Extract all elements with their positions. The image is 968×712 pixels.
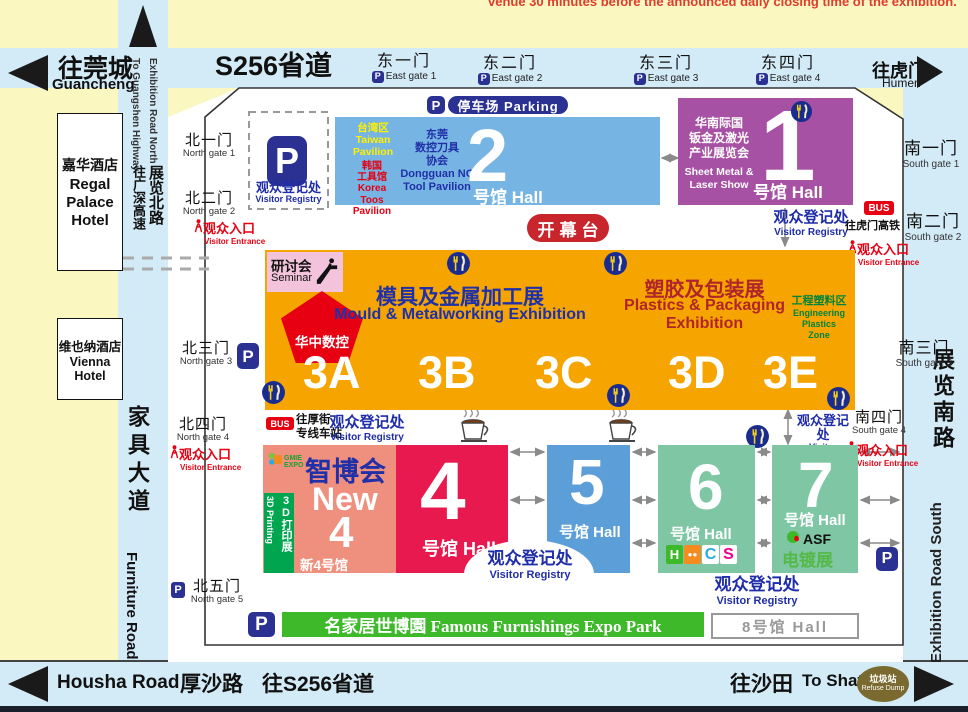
- dining-icon: [826, 386, 851, 416]
- visitor-entrance-zh: 观众入口: [856, 443, 908, 458]
- bus-humen-rail-label: 往虎门高铁: [845, 217, 900, 233]
- north-gate-1-zh: 北一门: [178, 132, 240, 149]
- opening-stage-label: 开幕台: [538, 216, 604, 241]
- south-gate-1: 南一门 South gate 1: [898, 139, 964, 170]
- eng-en2: Zone: [780, 330, 858, 341]
- to-s256-label: 往S256省道: [262, 668, 374, 698]
- parking-lot-badge: 停车场 Parking: [448, 96, 568, 114]
- visitor-registry-zh: 观众登记处: [484, 550, 576, 569]
- humen-label-en: Humen: [882, 76, 921, 90]
- regal-hotel-zh: 嘉华酒店: [58, 155, 122, 175]
- taiwan-en1: Taiwan: [345, 134, 401, 146]
- furniture-road-zh: 家具大道: [121, 405, 153, 560]
- south-gate-3: 南三门 South gate 3: [892, 340, 956, 369]
- mould-exhibition-en: Mould & Metalworking Exhibition: [325, 306, 595, 324]
- hcs-logo-dots: ●●: [684, 545, 701, 564]
- 3d-printing-strip: 3D Printing 3D打印展: [264, 493, 294, 573]
- seminar-labels: 研讨会 Seminar: [271, 260, 312, 285]
- north-gate-2-en: North gate 2: [178, 207, 240, 217]
- north-gate-1-en: North gate 1: [178, 149, 240, 159]
- hall-3c-label: 3C: [535, 350, 593, 395]
- hall-1: 华南际国 钣金及激光 产业展览会 Sheet Metal & Laser Sho…: [678, 98, 853, 205]
- visitor-registry-hall1: 观众登记处 Visitor Registry: [768, 210, 854, 238]
- closing-time-notice-text: venue 30 minutes before the announced da…: [488, 0, 966, 9]
- guancheng-label-en: Guancheng: [52, 76, 135, 93]
- korea-en2: Toos Pavilion: [341, 195, 403, 217]
- korea-pavilion-label: 韩国 工具馆 Korea Toos Pavilion: [341, 161, 403, 217]
- north-gate-2: 北二门 North gate 2: [178, 190, 240, 218]
- guancheng-arrow-icon: [8, 55, 48, 91]
- visitor-registry-zh: 观众登记处: [768, 210, 854, 227]
- visitor-entrance-zh: 观众入口: [203, 221, 255, 236]
- asf-text: ASF: [803, 531, 831, 547]
- dg-en1: Dongguan NC: [397, 168, 477, 181]
- housha-road-en: Housha Road: [57, 672, 179, 694]
- east-gate-1-en: East gate 1: [386, 71, 437, 82]
- hall-1-suffix: 号馆 Hall: [753, 178, 823, 203]
- dg-zh1: 东莞: [397, 129, 477, 142]
- hall-3d-label: 3D: [668, 350, 726, 395]
- north-gate-4: 北四门 North gate 4: [172, 416, 234, 444]
- visitor-registry-northwest: 观众登记处 Visitor Registry: [250, 181, 327, 205]
- parking-icon: P: [237, 343, 259, 369]
- north-gate-5-en: North gate 5: [186, 595, 248, 605]
- north-gate-2-zh: 北二门: [178, 190, 240, 207]
- shatian-arrow-icon: [914, 666, 954, 702]
- visitor-entrance-north4: 观众入口 Visitor Entrance: [170, 445, 241, 472]
- hall-3b-label: 3B: [418, 350, 476, 395]
- visitor-registry-zh: 观众登记处: [250, 181, 327, 195]
- hall-3a-label: 3A: [303, 350, 361, 395]
- korea-en1: Korea: [341, 183, 403, 194]
- to-guangshen-zh: 往广深高速: [129, 165, 148, 260]
- hall-7-number: 7: [798, 453, 834, 517]
- east-gate-4-zh: 东四门: [744, 55, 832, 73]
- s256-road-label: S256省道: [215, 44, 332, 83]
- visitor-registry-new4: 观众登记处 Visitor Registry: [326, 415, 408, 443]
- hall-2-number: 2: [467, 119, 508, 193]
- east-gate-3-zh: 东三门: [622, 55, 710, 73]
- east-gate-1-zh: 东一门: [362, 53, 446, 71]
- dg-zh3: 协会: [397, 155, 477, 168]
- visitor-entrance-zh: 观众入口: [179, 447, 231, 462]
- closing-time-notice: venue 30 minutes before the announced da…: [488, 0, 966, 9]
- east-gate-4-row: P East gate 4: [744, 73, 832, 85]
- parking-icon: P: [171, 582, 185, 598]
- plastics-exhibition-en2: Exhibition: [612, 315, 797, 333]
- eng-zh: 工程塑料区: [780, 295, 858, 308]
- new-hall-4: GMIE EXPO 智博会 New 4 新4号馆 3D Printing 3D打…: [263, 445, 396, 573]
- hcs-logo: H ●● C S: [666, 545, 738, 564]
- visitor-registry-en: Visitor Registry: [250, 195, 327, 205]
- new4-zh-label: 新4号馆: [300, 554, 348, 574]
- north-road-arrow-icon: [129, 5, 157, 47]
- hcs-logo-h: H: [666, 545, 683, 564]
- east-gate-4: 东四门 P East gate 4: [744, 55, 832, 85]
- regal-hotel-en2: Palace: [58, 194, 122, 211]
- north-gate-5: 北五门 North gate 5: [186, 578, 248, 606]
- h1-zh3: 产业展览会: [686, 146, 752, 161]
- parking-icon: P: [876, 547, 898, 571]
- plastics-exhibition-en1: Plastics & Packaging: [612, 297, 797, 315]
- south-gate-4: 南四门 South gate 4: [850, 409, 908, 437]
- hall-7-suffix: 号馆 Hall: [784, 509, 846, 530]
- hall-5-number: 5: [569, 450, 605, 514]
- east-gate-3-en: East gate 3: [648, 73, 699, 84]
- humen-arrow-icon: [917, 56, 943, 88]
- seminar-zh: 研讨会: [271, 260, 312, 274]
- visitor-registry-en: Visitor Registry: [768, 227, 854, 238]
- person-icon: [170, 446, 179, 463]
- south-gate-4-zh: 南四门: [850, 409, 908, 426]
- housha-arrow-icon: [8, 666, 48, 702]
- eng-en1: Engineering Plastics: [780, 308, 858, 330]
- parking-icon: P: [248, 612, 275, 637]
- east-gate-1-row: P East gate 1: [362, 71, 446, 83]
- sheet-metal-zh: 华南际国 钣金及激光 产业展览会: [686, 116, 752, 161]
- visitor-registry-en: Visitor Registry: [326, 432, 408, 443]
- east-gate-2-zh: 东二门: [468, 55, 552, 73]
- bus-badge: BUS: [864, 201, 894, 215]
- east-gate-1: 东一门 P East gate 1: [362, 53, 446, 83]
- hall-2: 台湾区 Taiwan Pavilion 韩国 工具馆 Korea Toos Pa…: [335, 117, 660, 205]
- east-gate-3: 东三门 P East gate 3: [622, 55, 710, 85]
- parking-icon: P: [634, 73, 646, 85]
- visitor-entrance-en: Visitor Entrance: [180, 464, 241, 472]
- hcs-logo-s: S: [720, 545, 737, 564]
- visitor-registry-en: Visitor Registry: [712, 595, 802, 607]
- taiwan-pavilion-label: 台湾区 Taiwan Pavilion: [345, 122, 401, 158]
- exhibition-road-south-en: Exhibition Road South: [928, 478, 945, 663]
- refuse-dump-zh: 垃圾站: [869, 675, 896, 685]
- visitor-entrance-en: Visitor Entrance: [204, 238, 265, 246]
- parking-icon: P: [267, 136, 307, 186]
- visitor-entrance-en: Visitor Entrance: [858, 259, 919, 267]
- famous-furnishings-bar: 名家居世博園 Famous Furnishings Expo Park: [282, 612, 704, 637]
- east-gate-2-en: East gate 2: [492, 73, 543, 84]
- dongguan-nc-tool-label: 东莞 数控刀具 协会 Dongguan NC Tool Pavilion: [397, 129, 477, 194]
- exhibition-map: venue 30 minutes before the announced da…: [0, 0, 968, 712]
- refuse-dump-en: Refuse Dump: [862, 685, 905, 693]
- visitor-entrance-north2: 观众入口 Visitor Entrance: [194, 219, 265, 246]
- visitor-registry-zh: 观众登记处: [712, 576, 802, 595]
- parking-icon: P: [427, 96, 445, 114]
- seminar-en: Seminar: [271, 273, 312, 284]
- furniture-road-en: Furniture Road: [123, 552, 140, 662]
- h1-en1: Sheet Metal &: [682, 166, 756, 179]
- north-gate-4-zh: 北四门: [172, 416, 234, 433]
- regal-hotel-en1: Regal: [58, 176, 122, 193]
- butterfly-icon: [268, 452, 282, 471]
- south-gate-2: 南二门 South gate 2: [900, 212, 966, 243]
- person-icon: [194, 220, 203, 237]
- regal-hotel-en3: Hotel: [58, 212, 122, 229]
- hall-8-label: 8号馆 Hall: [742, 616, 828, 637]
- east-gate-2: 东二门 P East gate 2: [468, 55, 552, 85]
- north-gate-1: 北一门 North gate 1: [178, 132, 240, 160]
- vienna-hotel-zh: 维也纳酒店: [58, 336, 122, 355]
- 3d-printing-zh: 3D打印展: [278, 495, 294, 571]
- new4-number: 4: [329, 511, 353, 555]
- dg-en2: Tool Pavilion: [397, 181, 477, 194]
- engineering-plastics-zone: 工程塑料区 Engineering Plastics Zone: [780, 295, 858, 341]
- dining-icon: [446, 251, 471, 281]
- hall-6-suffix: 号馆 Hall: [670, 523, 732, 544]
- south-gate-3-en: South gate 3: [892, 358, 956, 369]
- south-gate-1-en: South gate 1: [898, 159, 964, 170]
- shatian-label-zh: 往沙田: [730, 668, 793, 698]
- visitor-entrance-zh: 观众入口: [857, 242, 909, 257]
- seminar-box: 研讨会 Seminar: [267, 252, 343, 292]
- housha-road-zh: 厚沙路: [180, 668, 243, 698]
- east-gate-4-en: East gate 4: [770, 73, 821, 84]
- parking-icon: P: [756, 73, 768, 85]
- dining-icon: [606, 383, 631, 413]
- south-gate-1-zh: 南一门: [898, 139, 964, 159]
- dining-icon: [790, 100, 813, 128]
- south-gate-4-en: South gate 4: [850, 426, 908, 436]
- h1-en2: Laser Show: [682, 179, 756, 192]
- famous-furnishings-label: 名家居世博園 Famous Furnishings Expo Park: [324, 612, 661, 637]
- hall-8-box: 8号馆 Hall: [711, 613, 859, 639]
- hall-4-number: 4: [420, 451, 466, 533]
- dining-icon: [261, 380, 286, 410]
- hall-7: 7 号馆 Hall ASF 电镀展: [772, 445, 858, 573]
- north-gate-3: 北三门 North gate 3: [176, 340, 236, 368]
- escalator-icon: [315, 255, 339, 290]
- dg-zh2: 数控刀具: [397, 142, 477, 155]
- visitor-registry-zh: 观众登记处: [326, 415, 408, 432]
- south-gate-3-zh: 南三门: [892, 340, 956, 358]
- north-gate-5-zh: 北五门: [186, 578, 248, 595]
- taiwan-zh: 台湾区: [345, 122, 401, 134]
- korea-zh2: 工具馆: [341, 172, 403, 183]
- vienna-hotel-en: Vienna Hotel: [58, 355, 122, 383]
- visitor-entrance-en: Visitor Entrance: [857, 460, 918, 468]
- sheet-metal-en: Sheet Metal & Laser Show: [682, 166, 756, 191]
- hall-2-suffix: 号馆 Hall: [473, 183, 543, 208]
- regal-palace-hotel: 嘉华酒店 Regal Palace Hotel: [57, 113, 123, 271]
- north-gate-4-en: North gate 4: [172, 433, 234, 443]
- east-gate-3-row: P East gate 3: [622, 73, 710, 85]
- hall-5-suffix: 号馆 Hall: [559, 521, 621, 542]
- visitor-registry-hall45: 观众登记处 Visitor Registry: [484, 550, 576, 581]
- vienna-hotel: 维也纳酒店 Vienna Hotel: [57, 318, 123, 400]
- 3d-printing-en: 3D Printing: [265, 496, 275, 572]
- h1-zh2: 钣金及激光: [686, 131, 752, 146]
- visitor-registry-en: Visitor Registry: [484, 569, 576, 581]
- east-gate-2-row: P East gate 2: [468, 73, 552, 85]
- hcs-logo-c: C: [702, 545, 719, 564]
- parking-icon: P: [478, 73, 490, 85]
- south-gate-2-zh: 南二门: [900, 212, 966, 232]
- north-gate-3-zh: 北三门: [176, 340, 236, 357]
- refuse-dump-badge: 垃圾站 Refuse Dump: [857, 666, 909, 702]
- bus-badge: BUS: [266, 417, 294, 430]
- plating-show-label: 电镀展: [782, 546, 833, 571]
- h1-zh1: 华南际国: [686, 116, 752, 131]
- opening-stage-badge: 开幕台: [527, 214, 609, 242]
- zhanlan-north-road-zh: 展览北路: [145, 165, 166, 255]
- korea-zh1: 韩国: [341, 161, 403, 172]
- parking-icon: P: [372, 71, 384, 83]
- visitor-entrance-south2: 观众入口 Visitor Entrance: [848, 240, 919, 267]
- taiwan-en2: Pavilion: [345, 146, 401, 158]
- hall-6: 6 号馆 Hall H ●● C S: [658, 445, 755, 573]
- hall-3e-label: 3E: [763, 350, 818, 395]
- north-gate-3-en: North gate 3: [176, 357, 236, 367]
- dining-icon: [603, 251, 628, 281]
- visitor-registry-zh: 观众登记处: [791, 414, 855, 443]
- hall-6-number: 6: [688, 455, 724, 519]
- visitor-registry-hall6: 观众登记处 Visitor Registry: [712, 576, 802, 607]
- gmie-expo-logo: GMIE EXPO: [268, 452, 310, 471]
